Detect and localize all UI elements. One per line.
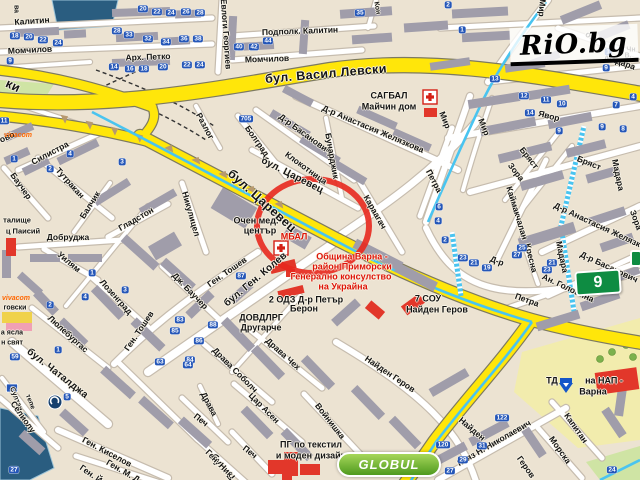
vivacom-watermark: vivacom: [2, 295, 30, 302]
landmark-icon: [7, 384, 18, 392]
globul-logo: GLOBUL: [337, 452, 441, 477]
city-map[interactable]: бул. Васил Левскибул. Царевецкибул. Царе…: [0, 0, 640, 480]
map-canvas: [0, 0, 640, 480]
hospital-cross-icon: [274, 241, 288, 255]
hospital-cross-icon: [423, 90, 437, 104]
monument-icon: [48, 395, 62, 409]
route-sign-partial: [630, 250, 640, 267]
route-number-sign: 9: [574, 268, 622, 296]
vivacom-watermark: vivacom: [4, 132, 32, 139]
rio-bg-watermark: RiO.bg: [510, 24, 639, 66]
